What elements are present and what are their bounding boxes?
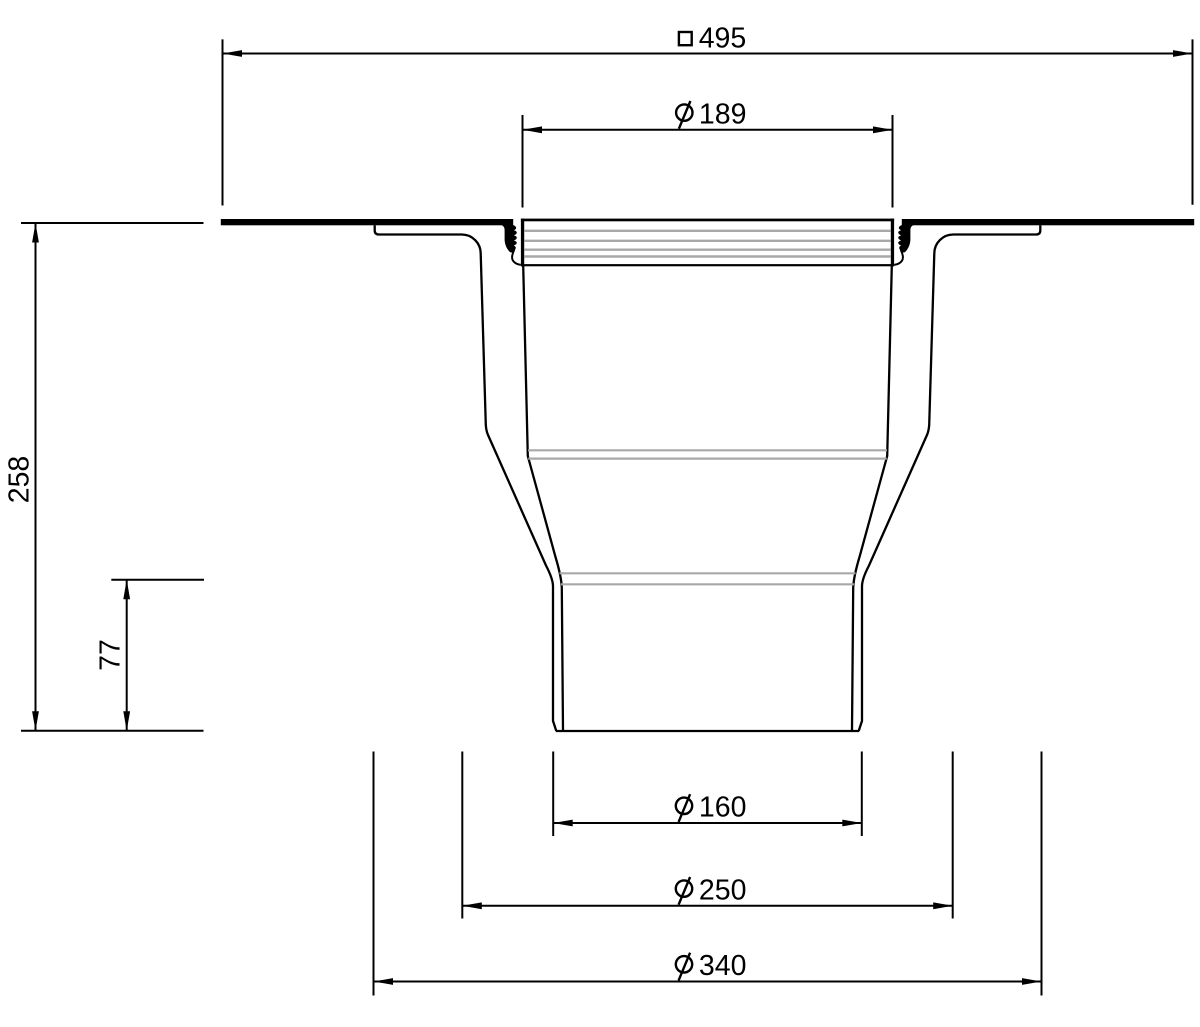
svg-text:495: 495: [699, 23, 747, 55]
svg-text:340: 340: [699, 950, 747, 982]
svg-text:250: 250: [699, 874, 747, 906]
svg-text:189: 189: [699, 98, 747, 130]
svg-text:77: 77: [95, 639, 127, 671]
svg-text:160: 160: [699, 792, 747, 824]
svg-text:258: 258: [3, 456, 35, 504]
